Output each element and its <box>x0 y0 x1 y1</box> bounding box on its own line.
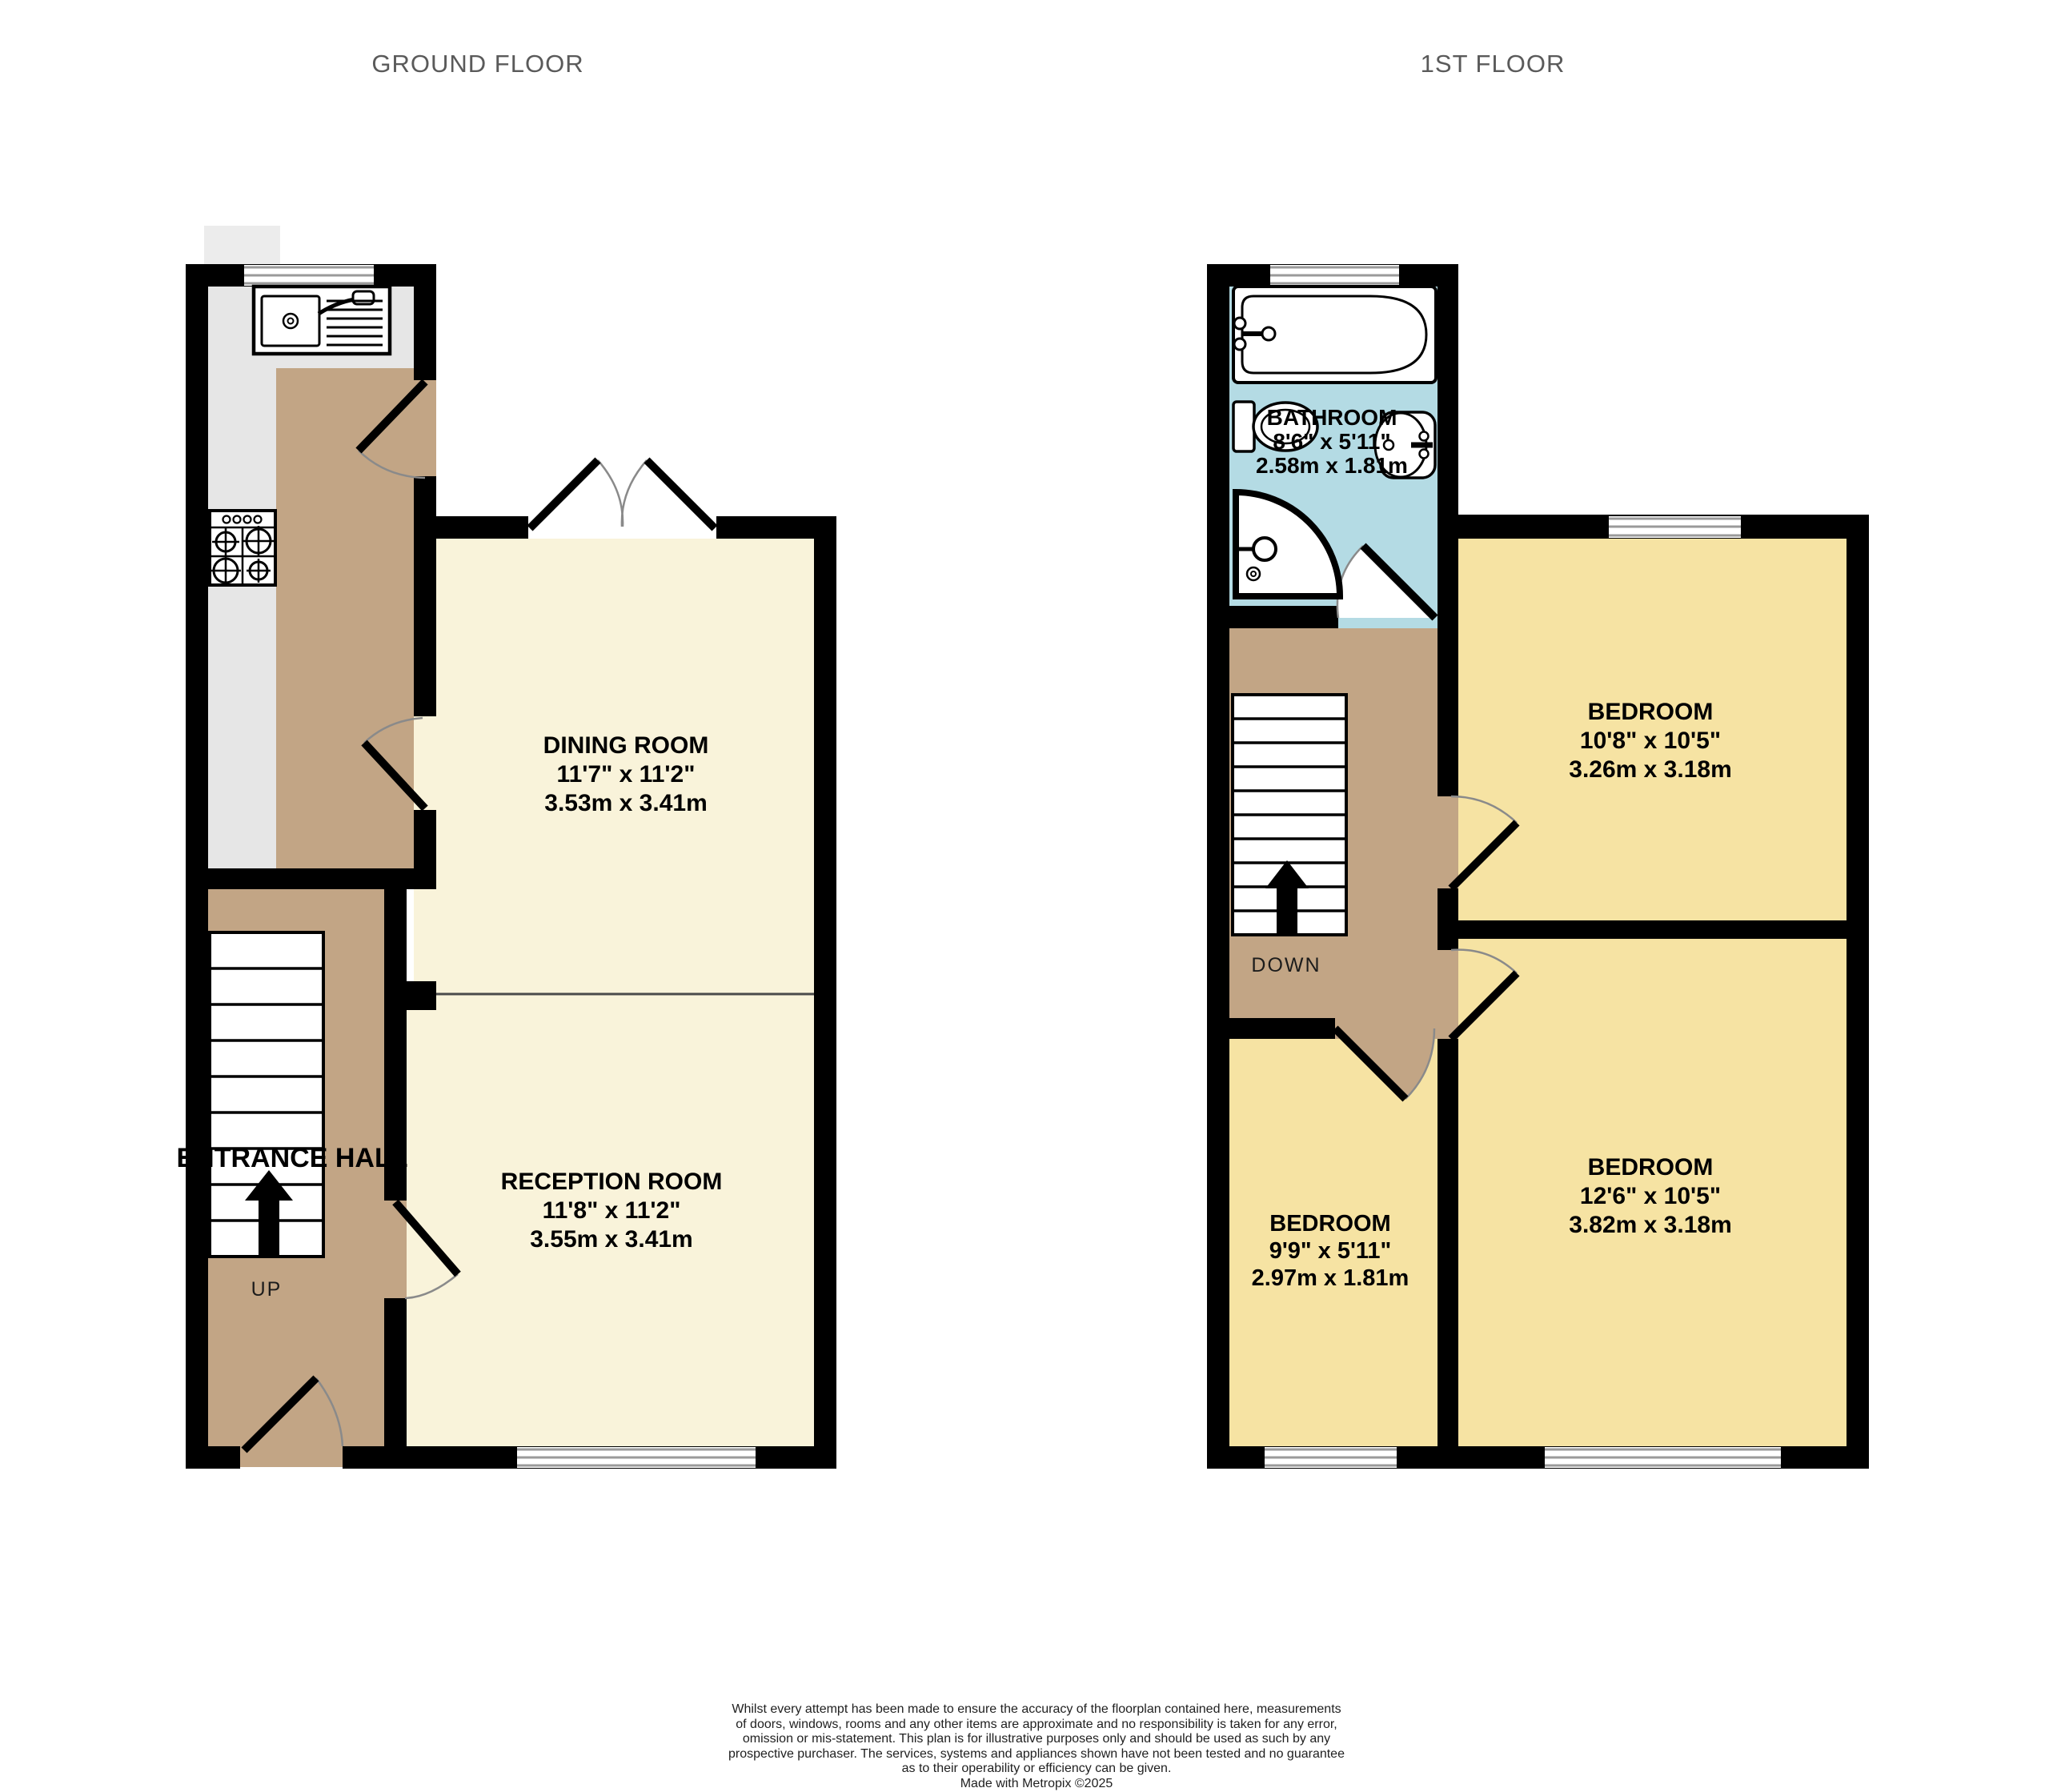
room-name: BATHROOM <box>1256 406 1408 430</box>
bedroom2-label: BEDROOM 12'6" x 10'5" 3.82m x 3.18m <box>1569 1153 1731 1240</box>
room-dims-imperial: 10'8" x 10'5" <box>1569 727 1731 756</box>
bathroom-label: BATHROOM 8'6" x 5'11" 2.58m x 1.81m <box>1256 406 1408 478</box>
room-name: BEDROOM <box>1569 1153 1731 1182</box>
stairs-down-label: DOWN <box>1251 954 1321 977</box>
first-floor-title: 1ST FLOOR <box>1421 50 1566 78</box>
front-door-threshold <box>240 1446 343 1467</box>
stairs-up-label: UP <box>251 1278 283 1301</box>
room-dims-imperial: 9'9" x 5'11" <box>1252 1237 1409 1265</box>
room-name: DINING ROOM <box>543 732 709 760</box>
room-name: RECEPTION ROOM <box>501 1168 723 1197</box>
ground-floor-title: GROUND FLOOR <box>371 50 583 78</box>
room-name: BEDROOM <box>1569 698 1731 727</box>
metropix-credit: Made with Metropix ©2025 <box>728 1777 1345 1792</box>
stove-icon <box>210 511 275 585</box>
room-dims-metric: 3.82m x 3.18m <box>1569 1211 1731 1240</box>
room-dims-imperial: 11'7" x 11'2" <box>543 760 709 789</box>
ground-floor-plan <box>186 226 836 1469</box>
floorplan-page: GROUND FLOOR 1ST FLOOR DINING ROOM 11'7"… <box>0 0 2049 1792</box>
room-dims-imperial: 8'6" x 5'11" <box>1256 430 1408 454</box>
window-bathroom <box>1270 265 1399 286</box>
chimney-breast <box>204 226 280 266</box>
bedroom3-label: BEDROOM 9'9" x 5'11" 2.97m x 1.81m <box>1252 1210 1409 1292</box>
room-dims-metric: 2.58m x 1.81m <box>1256 454 1408 478</box>
room-dims-metric: 3.26m x 3.18m <box>1569 756 1731 784</box>
reception-room-label: RECEPTION ROOM 11'8" x 11'2" 3.55m x 3.4… <box>501 1168 723 1254</box>
room-dims-metric: 2.97m x 1.81m <box>1252 1265 1409 1292</box>
floorplan-drawing <box>0 0 2049 1792</box>
window-bedroom3 <box>1265 1447 1397 1468</box>
room-dims-imperial: 12'6" x 10'5" <box>1569 1182 1731 1211</box>
window-bedroom2 <box>1545 1447 1781 1468</box>
window-kitchen <box>244 265 374 286</box>
disclaimer-text: Whilst every attempt has been made to en… <box>728 1702 1345 1792</box>
room-dims-metric: 3.53m x 3.41m <box>543 789 709 818</box>
french-doors-dining <box>530 460 715 528</box>
window-bedroom1 <box>1609 516 1741 538</box>
kitchen-sink-icon <box>254 287 390 354</box>
entrance-hall-label: ENTRANCE HALL <box>177 1143 408 1174</box>
window-reception <box>517 1447 756 1468</box>
bathtub-icon <box>1233 287 1436 383</box>
room-dims-metric: 3.55m x 3.41m <box>501 1225 723 1254</box>
room-name: BEDROOM <box>1252 1210 1409 1237</box>
room-dims-imperial: 11'8" x 11'2" <box>501 1197 723 1225</box>
dining-room-label: DINING ROOM 11'7" x 11'2" 3.53m x 3.41m <box>543 732 709 818</box>
bedroom1-label: BEDROOM 10'8" x 10'5" 3.26m x 3.18m <box>1569 698 1731 784</box>
